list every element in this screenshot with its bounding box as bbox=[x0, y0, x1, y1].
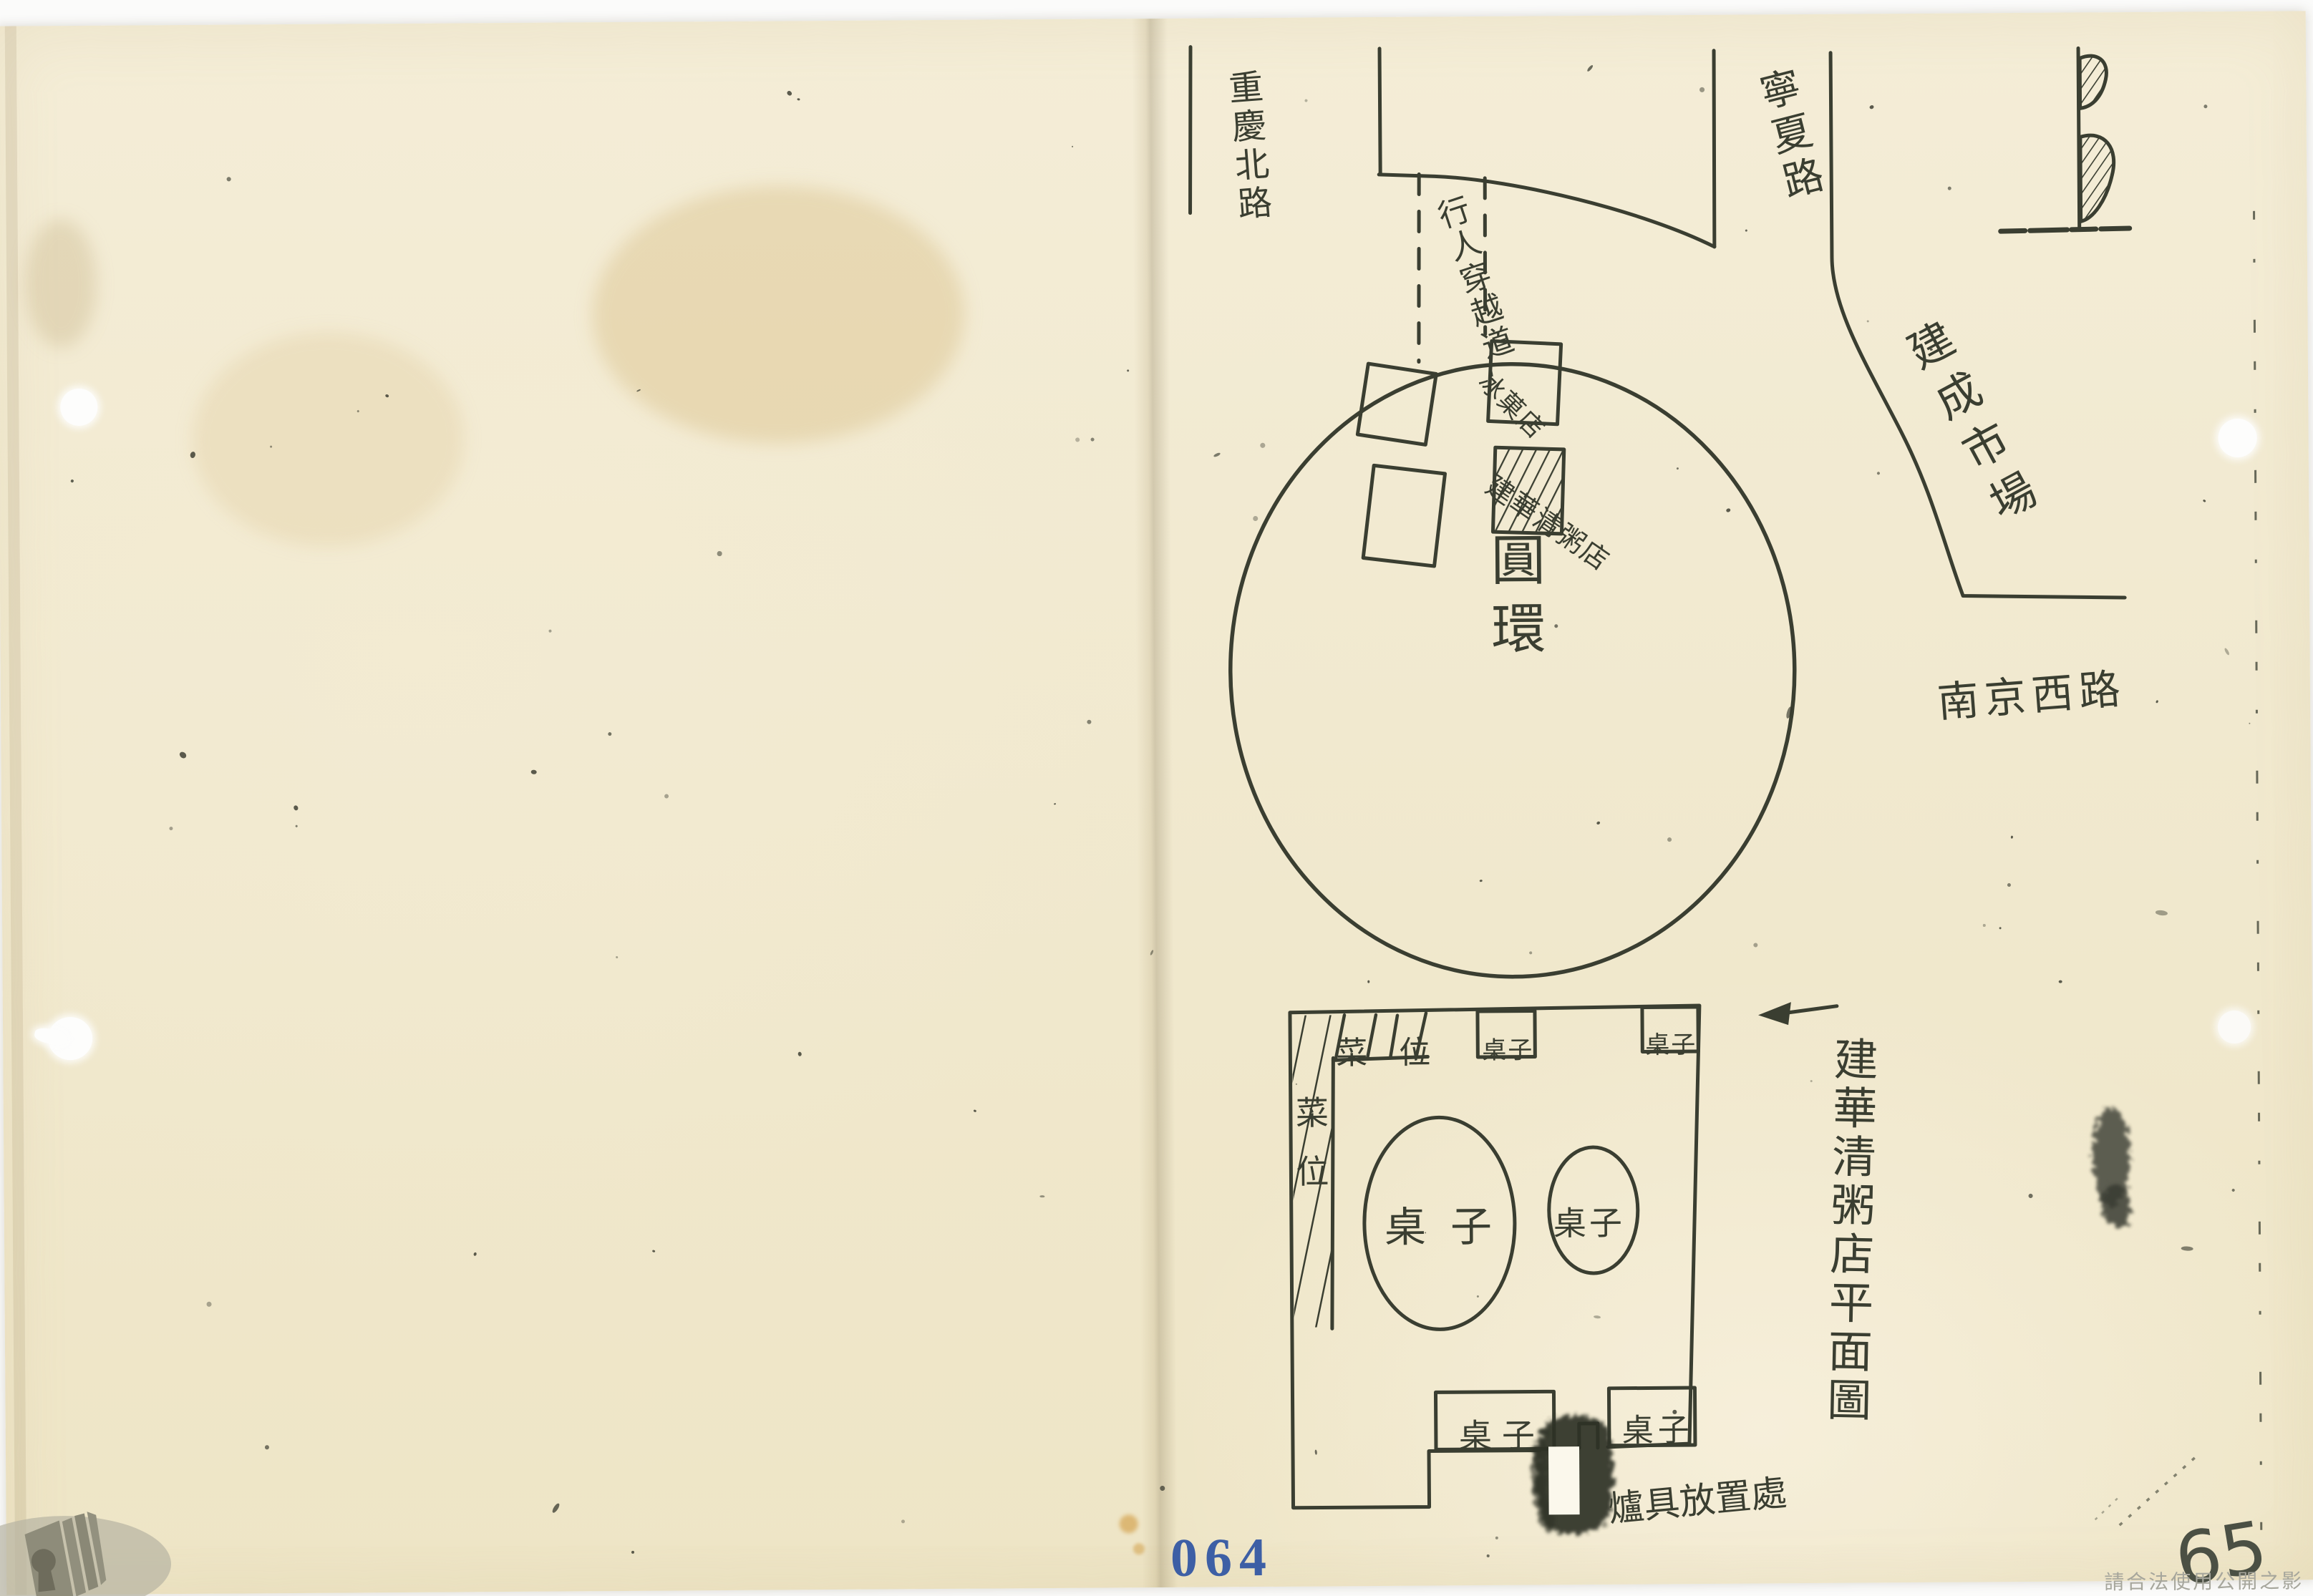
usage-watermark-text: 請合法使用公開之影像 bbox=[2104, 1565, 2313, 1596]
archives-book-keyhole-logo bbox=[0, 1492, 179, 1596]
plan-caption: 建華清粥店平面圖 bbox=[1823, 1036, 1875, 1426]
block-right-wall bbox=[1713, 51, 1715, 247]
page-number-stamp: 064 bbox=[1170, 1527, 1274, 1590]
road-line-chongqing bbox=[1189, 47, 1192, 213]
stray-streak bbox=[2095, 1497, 2119, 1519]
punch-hole bbox=[60, 389, 97, 426]
caption-arrow-shaft bbox=[1787, 1006, 1837, 1013]
punch-hole bbox=[2218, 1011, 2251, 1043]
plan-table-label: 桌子 bbox=[1645, 1033, 1697, 1057]
stray-streak bbox=[2119, 1453, 2201, 1525]
caption-arrowhead bbox=[1758, 1002, 1791, 1025]
plan-table-label: 桌子 bbox=[1622, 1415, 1694, 1447]
paper-speck bbox=[1487, 1554, 1490, 1557]
scanned-document-page: 重慶北路 寧夏路 建成市場 南京西路 行人穿越道 圓環 冰菓店 建華清粥店 建華… bbox=[0, 0, 2313, 1596]
plan-stall-label-left: 菜位 bbox=[1294, 1095, 1327, 1212]
redaction-white-box bbox=[1548, 1446, 1580, 1514]
paper-speck bbox=[548, 629, 552, 633]
plan-table-label: 桌子 bbox=[1459, 1419, 1545, 1452]
plan-stall-label-top: 菜位 bbox=[1336, 1037, 1462, 1069]
paper-sheet: 重慶北路 寧夏路 建成市場 南京西路 行人穿越道 圓環 冰菓店 建華清粥店 建華… bbox=[0, 11, 2313, 1595]
landmark-baseline bbox=[2001, 228, 2130, 231]
block-left-wall bbox=[1379, 49, 1380, 173]
fingerprint-smudge bbox=[2093, 1106, 2130, 1227]
roundabout-label: 圓環 bbox=[1485, 531, 1541, 668]
landmark-leaf bbox=[2080, 135, 2114, 221]
paper-speck bbox=[1367, 981, 1369, 983]
building-square bbox=[1363, 465, 1445, 566]
punch-hole bbox=[2218, 419, 2256, 457]
paper-speck bbox=[1040, 1195, 1045, 1197]
page-edge-dotted-rule bbox=[2253, 211, 2263, 1530]
hand-drawn-map-and-plan bbox=[0, 11, 2313, 1595]
plan-table-label: 桌子 bbox=[1482, 1038, 1533, 1063]
landmark-leaf bbox=[2080, 56, 2107, 108]
block-curved-bottom bbox=[1379, 172, 1715, 249]
crossing-dashed-line bbox=[1417, 175, 1420, 362]
paper-speck bbox=[717, 551, 722, 556]
plan-table-label: 桌子 bbox=[1385, 1206, 1516, 1248]
plan-table-label: 桌子 bbox=[1553, 1207, 1625, 1240]
road-line-east-curve bbox=[1830, 51, 2125, 600]
